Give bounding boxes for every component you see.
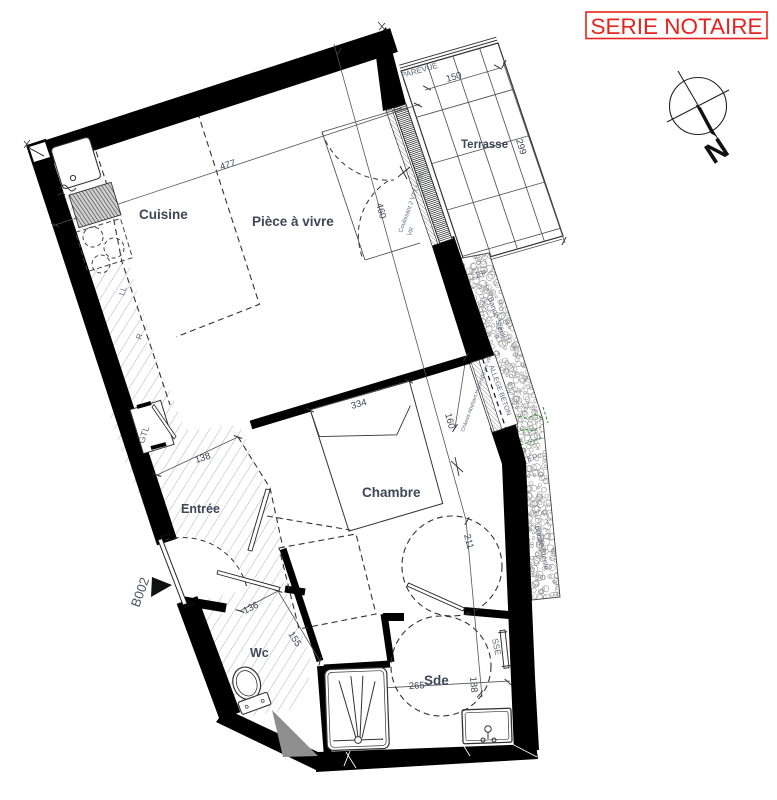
svg-text:Sde: Sde bbox=[424, 673, 449, 688]
svg-text:SERIE NOTAIRE: SERIE NOTAIRE bbox=[590, 14, 762, 39]
svg-text:Cuisine: Cuisine bbox=[139, 207, 188, 222]
svg-text:Chambre: Chambre bbox=[362, 485, 421, 500]
svg-text:Terrasse: Terrasse bbox=[461, 139, 508, 151]
svg-text:Pièce à vivre: Pièce à vivre bbox=[252, 214, 334, 229]
svg-text:Wc: Wc bbox=[250, 646, 269, 660]
svg-text:265: 265 bbox=[409, 680, 425, 692]
svg-text:188: 188 bbox=[467, 676, 479, 693]
svg-text:Entrée: Entrée bbox=[181, 502, 220, 516]
